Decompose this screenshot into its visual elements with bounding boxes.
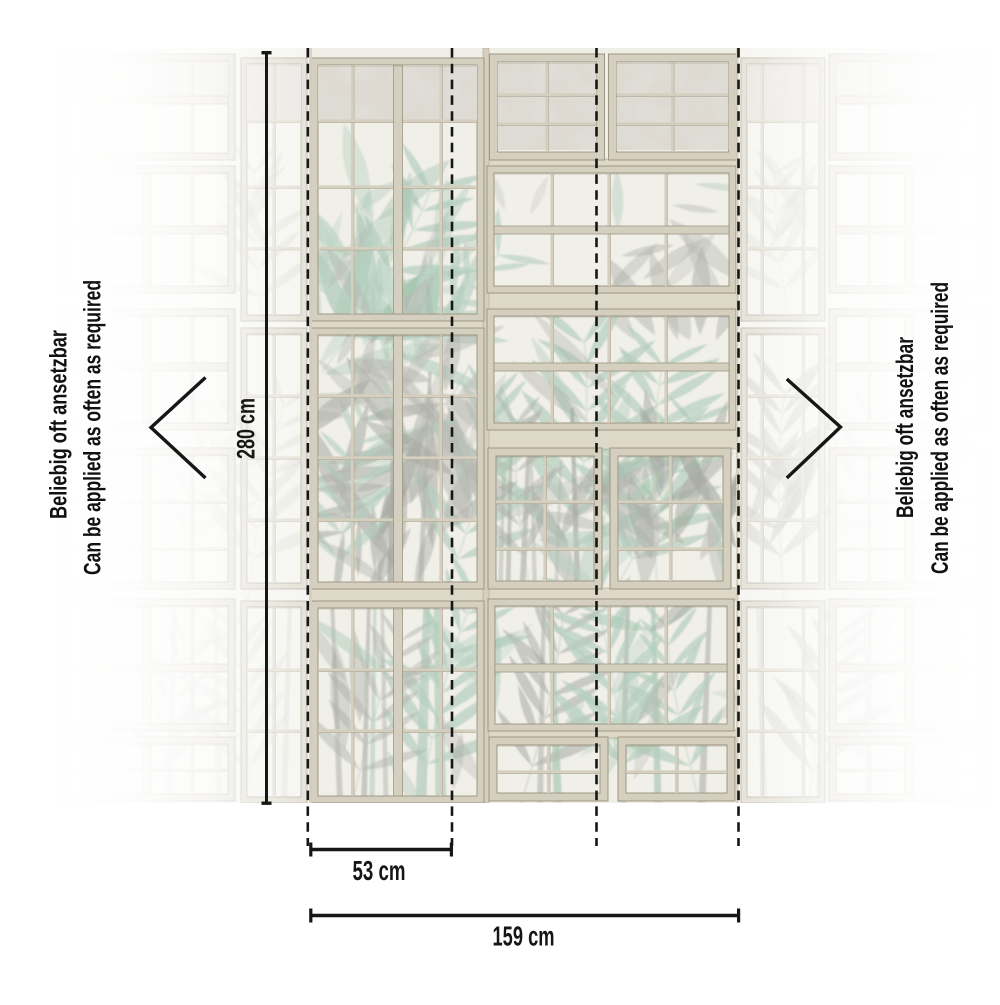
- svg-text:280 cm: 280 cm: [233, 398, 261, 459]
- svg-text:Can be applied as often as req: Can be applied as often as required: [927, 282, 954, 574]
- svg-text:Can be applied as often as req: Can be applied as often as required: [80, 280, 107, 575]
- svg-text:Beliebig oft ansetzbar: Beliebig oft ansetzbar: [892, 337, 919, 518]
- svg-text:159 cm: 159 cm: [493, 921, 555, 952]
- svg-text:53 cm: 53 cm: [353, 855, 406, 886]
- svg-text:Beliebig oft ansetzbar: Beliebig oft ansetzbar: [46, 330, 73, 519]
